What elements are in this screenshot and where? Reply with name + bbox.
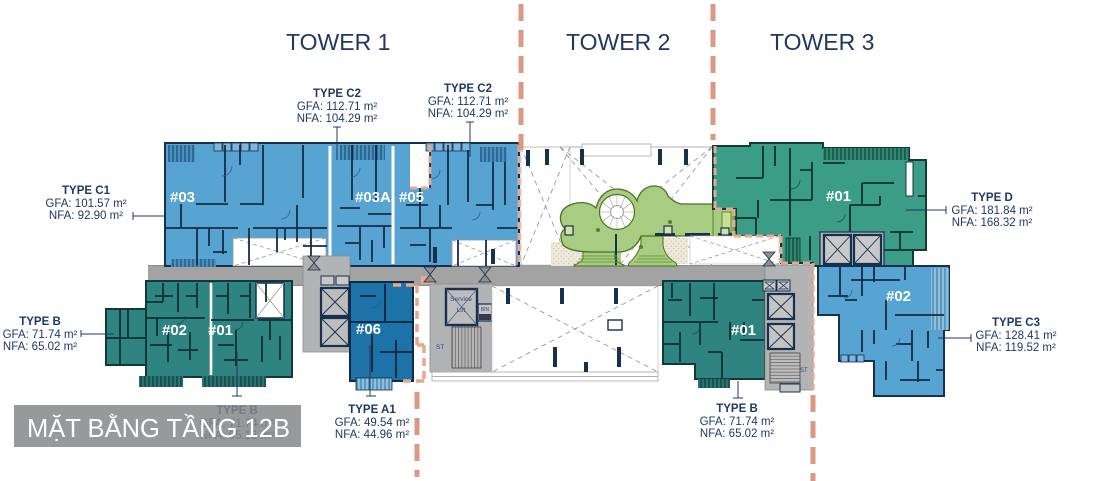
svg-text:ST: ST — [436, 344, 444, 351]
svg-text:GFA: 101.57 m²: GFA: 101.57 m² — [45, 198, 126, 210]
svg-text:TYPE C1: TYPE C1 — [62, 185, 111, 197]
svg-text:#01: #01 — [731, 322, 756, 339]
svg-text:GFA: 112.71 m²: GFA: 112.71 m² — [297, 101, 377, 113]
svg-text:TYPE C3: TYPE C3 — [992, 317, 1040, 329]
svg-text:GFA: 71.74 m²: GFA: 71.74 m² — [3, 329, 78, 341]
svg-text:NFA: 104.29 m²: NFA: 104.29 m² — [428, 108, 509, 120]
svg-text:#03A: #03A — [355, 189, 391, 206]
svg-text:GFA: 71.74 m²: GFA: 71.74 m² — [700, 416, 775, 428]
svg-text:MẶT BẰNG TẦNG 12B: MẶT BẰNG TẦNG 12B — [27, 413, 290, 443]
svg-text:NFA: 65.02 m²: NFA: 65.02 m² — [700, 428, 774, 440]
svg-text:#03: #03 — [170, 189, 195, 206]
svg-text:TYPE C2: TYPE C2 — [444, 83, 492, 95]
svg-text:#02: #02 — [162, 322, 187, 339]
svg-text:TYPE D: TYPE D — [971, 192, 1013, 204]
svg-text:TYPE B: TYPE B — [716, 403, 758, 415]
svg-text:#05: #05 — [399, 189, 424, 206]
svg-text:Service: Service — [450, 296, 472, 303]
svg-text:BIN: BIN — [481, 307, 490, 313]
svg-text:TOWER 1: TOWER 1 — [286, 29, 390, 55]
svg-text:ST: ST — [800, 368, 808, 374]
svg-text:TOWER 2: TOWER 2 — [566, 29, 670, 55]
svg-text:#01: #01 — [208, 322, 233, 339]
svg-text:NFA: 44.96 m²: NFA: 44.96 m² — [335, 429, 409, 441]
svg-text:NFA: 104.29 m²: NFA: 104.29 m² — [297, 113, 378, 125]
svg-text:TYPE B: TYPE B — [19, 316, 61, 328]
svg-text:NFA: 119.52 m²: NFA: 119.52 m² — [976, 342, 1056, 354]
svg-text:TYPE C2: TYPE C2 — [313, 88, 361, 100]
svg-text:#01: #01 — [826, 188, 851, 205]
svg-text:TYPE A1: TYPE A1 — [348, 404, 396, 416]
svg-text:GFA: 181.84 m²: GFA: 181.84 m² — [951, 205, 1032, 217]
svg-text:TOWER 3: TOWER 3 — [770, 29, 874, 55]
svg-text:#06: #06 — [356, 321, 381, 338]
svg-text:GFA: 49.54 m²: GFA: 49.54 m² — [335, 417, 410, 429]
svg-text:NFA: 92.90 m²: NFA: 92.90 m² — [49, 210, 123, 222]
svg-text:NFA: 168.32 m²: NFA: 168.32 m² — [952, 217, 1033, 229]
svg-text:NFA: 65.02 m²: NFA: 65.02 m² — [3, 341, 77, 353]
svg-text:GFA: 112.71 m²: GFA: 112.71 m² — [428, 96, 508, 108]
svg-text:GFA: 128.41 m²: GFA: 128.41 m² — [975, 330, 1056, 342]
svg-text:Lift: Lift — [457, 307, 466, 314]
svg-text:#02: #02 — [886, 288, 911, 305]
